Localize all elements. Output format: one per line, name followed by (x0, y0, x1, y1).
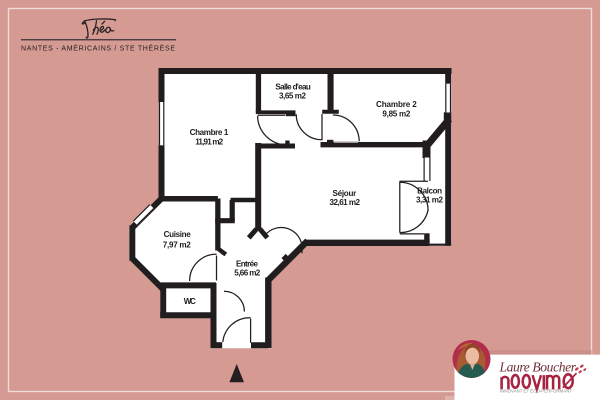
svg-text:Chambre 1: Chambre 1 (190, 128, 229, 137)
svg-text:Balcon: Balcon (417, 186, 442, 195)
svg-text:INNOVANT ET ÉCO-PERFORMANT: INNOVANT ET ÉCO-PERFORMANT (500, 387, 572, 394)
svg-text:Chambre 2: Chambre 2 (376, 100, 417, 109)
svg-text:Salle d'eau: Salle d'eau (275, 83, 310, 92)
svg-text:NANTES - AMÉRICAINS / STE THÉR: NANTES - AMÉRICAINS / STE THÉRÈSE (21, 44, 176, 53)
svg-text:3,65 m2: 3,65 m2 (279, 91, 306, 100)
svg-text:Séjour: Séjour (333, 189, 358, 198)
svg-text:Cuisine: Cuisine (164, 230, 192, 239)
svg-text:WC: WC (184, 297, 196, 306)
svg-text:5,66 m2: 5,66 m2 (234, 268, 260, 277)
svg-text:7,97 m2: 7,97 m2 (163, 240, 191, 249)
svg-text:Entrée: Entrée (236, 260, 259, 269)
svg-text:3,31 m2: 3,31 m2 (416, 196, 443, 205)
svg-text:32,61 m2: 32,61 m2 (330, 198, 361, 207)
svg-text:Laure Boucher: Laure Boucher (499, 360, 577, 375)
svg-text:11,91 m2: 11,91 m2 (195, 137, 223, 146)
svg-text:9,85 m2: 9,85 m2 (382, 110, 410, 119)
